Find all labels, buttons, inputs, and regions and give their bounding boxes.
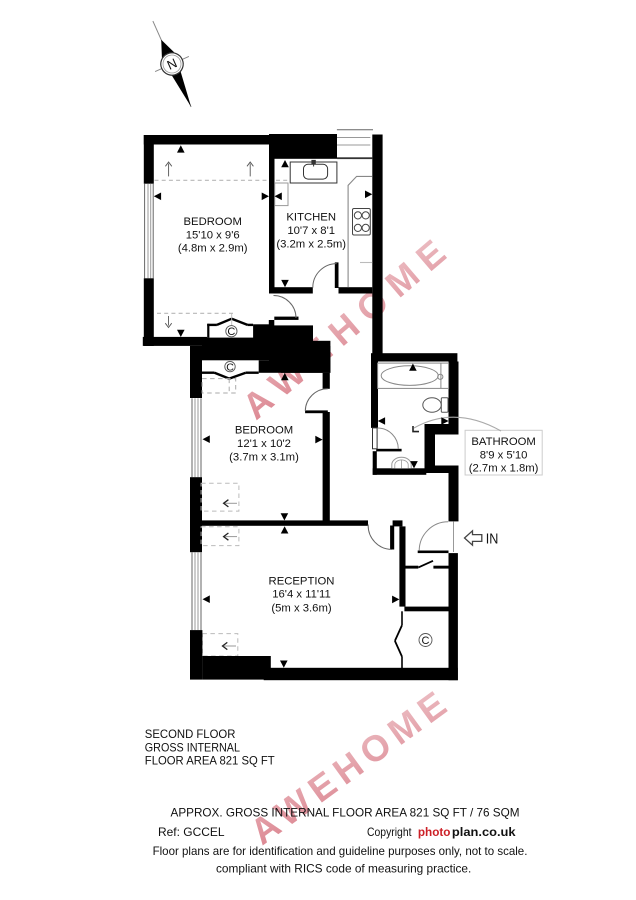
svg-text:BEDROOM: BEDROOM: [184, 216, 242, 228]
svg-text:APPROX. GROSS INTERNAL FLOOR A: APPROX. GROSS INTERNAL FLOOR AREA 821 SQ…: [171, 805, 520, 819]
svg-text:12'1 x 10'2: 12'1 x 10'2: [237, 438, 291, 450]
svg-text:compliant with RICS code of me: compliant with RICS code of measuring pr…: [216, 862, 471, 876]
svg-text:RECEPTION: RECEPTION: [269, 575, 335, 587]
svg-text:10'7 x 8'1: 10'7 x 8'1: [287, 225, 335, 237]
svg-text:SECOND FLOOR: SECOND FLOOR: [145, 727, 236, 741]
svg-text:8'9 x 5'10: 8'9 x 5'10: [480, 449, 528, 461]
svg-text:(3.2m x 2.5m): (3.2m x 2.5m): [276, 239, 346, 251]
svg-text:C: C: [227, 326, 235, 338]
svg-text:(4.8m x 2.9m): (4.8m x 2.9m): [178, 243, 248, 255]
svg-text:Ref: GCCEL: Ref: GCCEL: [158, 825, 225, 839]
svg-text:IN: IN: [486, 532, 499, 548]
svg-text:16'4 x 11'11: 16'4 x 11'11: [272, 589, 331, 601]
svg-text:C: C: [422, 635, 430, 647]
svg-text:BEDROOM: BEDROOM: [235, 425, 293, 437]
svg-text:KITCHEN: KITCHEN: [286, 211, 336, 223]
svg-text:Floor plans are for identifica: Floor plans are for identification and g…: [153, 844, 528, 858]
svg-text:plan.co.uk: plan.co.uk: [452, 825, 516, 839]
svg-text:BATHROOM: BATHROOM: [471, 436, 535, 448]
svg-text:Copyright: Copyright: [367, 825, 412, 839]
svg-text:C: C: [226, 361, 234, 373]
svg-text:FLOOR AREA 821 SQ FT: FLOOR AREA 821 SQ FT: [145, 754, 275, 768]
svg-text:photo: photo: [418, 825, 451, 839]
svg-text:(3.7m x 3.1m): (3.7m x 3.1m): [229, 451, 299, 463]
svg-text:(2.7m x 1.8m): (2.7m x 1.8m): [469, 463, 539, 475]
svg-text:15'10 x 9'6: 15'10 x 9'6: [186, 229, 240, 241]
svg-text:(5m x 3.6m): (5m x 3.6m): [271, 602, 331, 614]
svg-text:GROSS INTERNAL: GROSS INTERNAL: [145, 740, 240, 754]
